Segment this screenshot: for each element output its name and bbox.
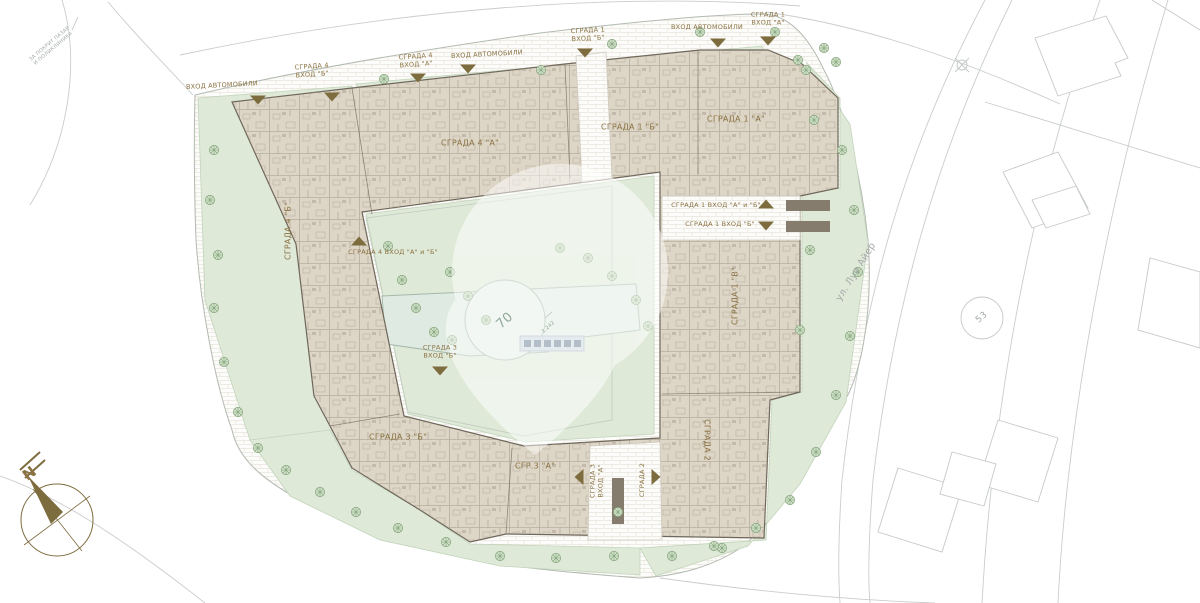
tree-icon — [609, 551, 618, 560]
tree-icon — [695, 27, 704, 36]
tree-icon — [281, 465, 290, 474]
tree-icon — [383, 241, 392, 250]
tree-icon — [219, 357, 228, 366]
tree-icon — [849, 205, 858, 214]
tree-icon — [233, 407, 242, 416]
neighbor-buildings — [878, 0, 1200, 552]
tree-icon — [209, 145, 218, 154]
tree-icon — [795, 325, 804, 334]
tree-icon — [429, 327, 438, 336]
tree-icon — [770, 27, 779, 36]
tree-icon — [441, 537, 450, 546]
tree-icon — [801, 65, 810, 74]
tree-icon — [551, 553, 560, 562]
tree-icon — [667, 551, 676, 560]
tree-icon — [785, 495, 794, 504]
tree-icon — [819, 43, 828, 52]
tree-icon — [845, 331, 854, 340]
site-number-circle — [961, 297, 1003, 339]
tree-icon — [613, 507, 622, 516]
site-plan-canvas: ЗА ПОКРИТ ПАЗАР И ПОЛИКЛИНИКАВХОД АВТОМО… — [0, 0, 1200, 603]
tree-icon — [831, 57, 840, 66]
tree-icon — [536, 65, 545, 74]
tree-icon — [831, 390, 840, 399]
compass-rose — [20, 452, 93, 556]
tree-icon — [315, 487, 324, 496]
tree-icon — [213, 250, 222, 259]
tree-icon — [253, 443, 262, 452]
tree-icon — [811, 447, 820, 456]
tree-icon — [393, 523, 402, 532]
tree-icon — [209, 303, 218, 312]
tree-icon — [379, 74, 388, 83]
tree-icon — [351, 507, 360, 516]
lamp-icon — [955, 58, 969, 72]
tree-icon — [837, 145, 846, 154]
tree-icon — [205, 195, 214, 204]
tree-icon — [751, 523, 760, 532]
tree-icon — [411, 303, 420, 312]
tree-icon — [853, 267, 862, 276]
tree-icon — [709, 541, 718, 550]
tree-icon — [397, 275, 406, 284]
tree-icon — [809, 115, 818, 124]
tree-icon — [607, 39, 616, 48]
site-plan-drawing — [0, 0, 1200, 603]
tree-icon — [495, 551, 504, 560]
tree-icon — [793, 55, 802, 64]
tree-icon — [805, 245, 814, 254]
